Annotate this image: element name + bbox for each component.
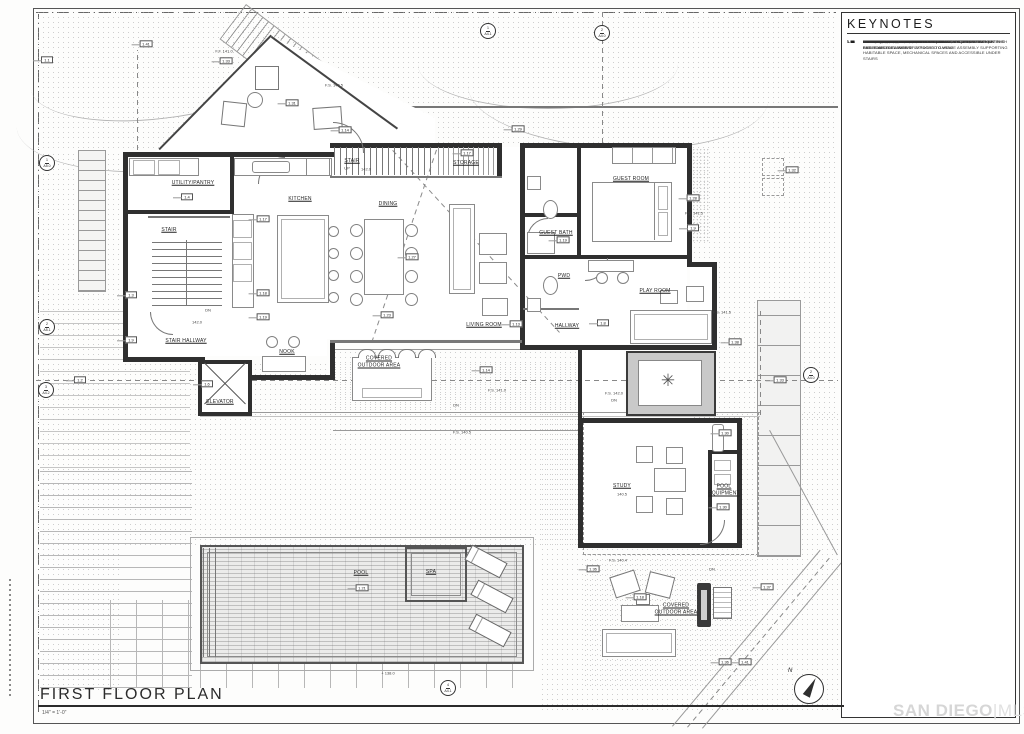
wall — [577, 148, 581, 258]
sink — [527, 176, 541, 190]
marker-sheet: A4.0 — [807, 376, 814, 381]
line — [186, 240, 187, 306]
pillow — [658, 212, 668, 236]
keynote-tag: 1.2 — [74, 376, 86, 383]
white — [580, 350, 624, 418]
site-stairs — [757, 300, 801, 557]
keynote-tag: 1.21 — [356, 584, 369, 591]
room-label: COVERED OUTDOOR AREA — [353, 356, 405, 369]
study-chair — [666, 498, 683, 515]
retaining-wall-line — [398, 106, 838, 108]
mls-watermark: SAN DIEGO|MLS — [893, 701, 1024, 721]
level-annotation: F.S. 141.5 — [685, 211, 703, 216]
wall — [578, 350, 582, 420]
study-chair — [636, 446, 653, 463]
keynote-tag: 1.19 — [257, 313, 270, 320]
keynote-tag: 1.31 — [286, 99, 299, 106]
marker-sheet: A4.1 — [444, 689, 451, 694]
level-annotation: 140.5 — [617, 492, 627, 497]
dining-chair — [350, 270, 363, 283]
room-label: STORAGE — [453, 160, 479, 167]
room-label: LIVING ROOM — [466, 322, 502, 329]
stool — [328, 226, 339, 237]
keynote-tag: 1.6 — [201, 380, 213, 387]
outdoor-chair — [418, 349, 436, 358]
keynote-tag: 1.19 — [557, 236, 570, 243]
planter — [255, 66, 279, 90]
oven — [233, 220, 252, 238]
wall — [240, 375, 335, 380]
toilet — [543, 200, 558, 219]
keynotes-panel: KEYNOTES 1.1 PROPERTY LINE, TYP. 1.2 SET… — [841, 12, 1016, 718]
wall — [123, 357, 205, 362]
level-annotation: DN — [611, 398, 617, 403]
keynote-tag: 1.32 — [786, 166, 799, 173]
island-counter — [281, 219, 325, 299]
play-desk — [588, 260, 634, 272]
keynote-tag: 1.33 — [774, 376, 787, 383]
room-label: PLAY ROOM — [639, 288, 670, 295]
nook-stool — [266, 336, 278, 348]
keynote-tag: 1.1 — [41, 56, 53, 63]
level-annotation: F.S. 140.5 — [453, 430, 471, 435]
ac-unit — [762, 178, 784, 196]
sink — [527, 298, 541, 312]
fire-pit-symbol: ✳ — [661, 371, 675, 391]
north-arrow-icon — [794, 674, 824, 704]
oven — [233, 264, 252, 282]
room-label: HALLWAY — [555, 323, 579, 330]
wall — [520, 143, 525, 350]
play-chair — [686, 286, 704, 302]
keynote-tag: 1.29 — [512, 125, 525, 132]
dining-chair — [350, 247, 363, 260]
section-marker: 4 A4.1 — [440, 680, 456, 696]
room-label: COVERED OUTDOOR AREA — [650, 603, 702, 616]
level-annotation: UP — [344, 166, 350, 171]
room-label: GUEST BATH — [539, 230, 573, 237]
wall — [687, 143, 692, 267]
room-label: PWD — [558, 273, 570, 280]
north-label: N — [788, 668, 792, 674]
dining-chair — [350, 293, 363, 306]
armchair — [479, 233, 507, 255]
keynote-tag: 1.30 — [717, 503, 730, 510]
wall — [520, 345, 717, 350]
keynote-tag: 1.30 — [719, 429, 732, 436]
wall — [123, 152, 128, 362]
level-annotation: 142.0 — [361, 167, 371, 172]
setback-line — [36, 380, 838, 381]
study-chair — [666, 447, 683, 464]
elevator-shaft — [198, 360, 252, 416]
section-marker: 1 A5.0 — [39, 155, 55, 171]
stool — [328, 248, 339, 259]
title-underline — [38, 705, 844, 707]
wall — [712, 262, 717, 350]
keynote-number: 1.43 — [847, 39, 860, 45]
room-label: STAIR — [344, 158, 359, 165]
wardrobe — [612, 147, 676, 164]
line — [654, 182, 655, 240]
grill — [713, 587, 732, 619]
keynote-tag: 1.36 — [719, 658, 732, 665]
planter — [221, 101, 247, 127]
pool-steps — [203, 548, 217, 657]
level-annotation: DN — [205, 308, 211, 313]
keynote-row: 1.43 PROPOSED TOPOGRAPHY, PER SITE PLAN — [847, 39, 950, 45]
level-annotation: F.S. 142.0 — [605, 391, 623, 396]
marker-sheet: A5.0 — [43, 164, 50, 169]
room-label: POOL — [354, 570, 369, 577]
study-table — [654, 468, 686, 492]
room-label: SPA — [426, 569, 436, 576]
refrigerator — [306, 158, 330, 176]
keynote-tag: 1.9 — [125, 336, 137, 343]
level-annotation: DN — [709, 567, 715, 572]
level-annotation: 142.0 — [192, 320, 202, 325]
keynote-tag: 1.41 — [140, 40, 153, 47]
planter-pot — [247, 92, 263, 108]
nook-table — [262, 356, 306, 372]
keynote-tag: 1.4 — [181, 193, 193, 200]
keynote-tag: 1.18 — [257, 289, 270, 296]
level-annotation: F.S. 141.5 — [713, 310, 731, 315]
level-annotation: + 138.0 — [381, 671, 394, 676]
dash-v — [137, 50, 138, 150]
drawing-sheet: ✳ UTILITY/PANTRYKITCHENSTAIRSTAIRSTORAGE… — [0, 0, 1024, 734]
wall — [578, 543, 742, 548]
level-annotation: F.S. 140.5 — [325, 83, 343, 88]
wall-thin — [330, 176, 502, 178]
keynote-tag: 1.17 — [257, 215, 270, 222]
room-label: STAIR — [161, 227, 176, 234]
watermark-left: SAN DIEGO — [893, 701, 993, 720]
room-label: DINING — [379, 201, 398, 208]
margin-annotation — [9, 578, 11, 696]
nook-stool — [288, 336, 300, 348]
level-annotation: F.S. 141.0 — [488, 388, 506, 393]
wall — [497, 143, 502, 178]
keynote-tag: 1.3 — [125, 291, 137, 298]
pool-inner — [207, 552, 517, 657]
keynote-tag: 1.18 — [634, 593, 647, 600]
section-marker: 3 A4.2 — [38, 382, 54, 398]
wall — [578, 418, 742, 423]
room-label: UTILITY/PANTRY — [172, 180, 215, 187]
marker-sheet: A4.2 — [42, 391, 49, 396]
wall — [330, 340, 335, 380]
keynotes-header: KEYNOTES — [847, 17, 1010, 34]
dining-chair — [405, 270, 418, 283]
room-label: STUDY — [613, 483, 631, 490]
dining-chair — [405, 224, 418, 237]
toilet — [543, 276, 558, 295]
keynote-tag: 1.14 — [339, 126, 352, 133]
oven — [233, 242, 252, 260]
pool-equipment-unit — [714, 460, 731, 471]
page-title: FIRST FLOOR PLAN — [40, 686, 224, 704]
desk-stool — [617, 272, 629, 284]
keynote-tag: 1.13 — [510, 320, 523, 327]
keynote-tag: 1.41 — [739, 658, 752, 665]
keynote-text: PROPOSED TOPOGRAPHY, PER SITE PLAN — [863, 39, 950, 45]
section-marker: 2 A5.1 — [39, 319, 55, 335]
wall — [123, 152, 335, 157]
keynote-tag: 1.36 — [587, 565, 600, 572]
room-label: STAIR HALLWAY — [165, 338, 206, 345]
keynote-tag: 1.38 — [729, 338, 742, 345]
keynote-tag: 1.37 — [761, 583, 774, 590]
section-marker: 2 A4.0 — [803, 367, 819, 383]
site-stairs — [78, 150, 106, 292]
keynote-tag: 1.9 — [687, 224, 699, 231]
stair-treads — [152, 240, 222, 306]
desk-stool — [596, 272, 608, 284]
study-chair — [636, 496, 653, 513]
room-label: POOL EQUIPMENT — [707, 484, 741, 497]
keynote-tag: 1.33 — [220, 57, 233, 64]
stool — [328, 292, 339, 303]
room-label: KITCHEN — [288, 196, 311, 203]
watermark-right: MLS — [998, 701, 1024, 720]
level-annotation: F.F. 141.0 — [215, 49, 232, 54]
furn — [453, 208, 471, 290]
keynote-tag: 1.14 — [480, 366, 493, 373]
wall — [578, 418, 583, 548]
furn — [362, 388, 422, 398]
stipple — [583, 553, 758, 688]
keynote-tag: 1.8 — [597, 319, 609, 326]
keynote-tag: 1.27 — [406, 253, 419, 260]
dining-chair — [405, 293, 418, 306]
marker-sheet: A4.0 — [598, 34, 605, 39]
room-label: GUEST ROOM — [613, 176, 649, 183]
drawing-scale: 1/4" = 1'-0" — [42, 710, 66, 716]
cooktop — [252, 161, 290, 173]
keynote-tag: 1.28 — [687, 194, 700, 201]
furn — [606, 633, 672, 653]
glazing — [330, 340, 522, 343]
section-marker: 1 A4.1 — [480, 23, 496, 39]
level-annotation: DN — [453, 403, 459, 408]
section-marker: 2 A4.0 — [594, 25, 610, 41]
washer — [133, 160, 155, 175]
room-label: ELEVATOR — [206, 399, 233, 406]
pool-heater — [712, 424, 724, 452]
pillow — [658, 186, 668, 210]
dash-v — [760, 310, 761, 415]
wall-thin — [148, 216, 230, 218]
furn — [634, 314, 708, 340]
wall — [123, 210, 234, 214]
coffee-table — [482, 298, 508, 316]
stool — [328, 270, 339, 281]
ac-unit — [762, 158, 784, 176]
dryer — [158, 160, 180, 175]
armchair — [479, 262, 507, 284]
room-label: NOOK — [279, 349, 295, 356]
level-annotation: F.S. 140.4 — [609, 558, 627, 563]
marker-sheet: A5.1 — [43, 328, 50, 333]
dining-chair — [350, 224, 363, 237]
keynote-tag: 1.23 — [381, 311, 394, 318]
keynote-tag: 1.17 — [461, 149, 474, 156]
marker-sheet: A4.1 — [484, 32, 491, 37]
